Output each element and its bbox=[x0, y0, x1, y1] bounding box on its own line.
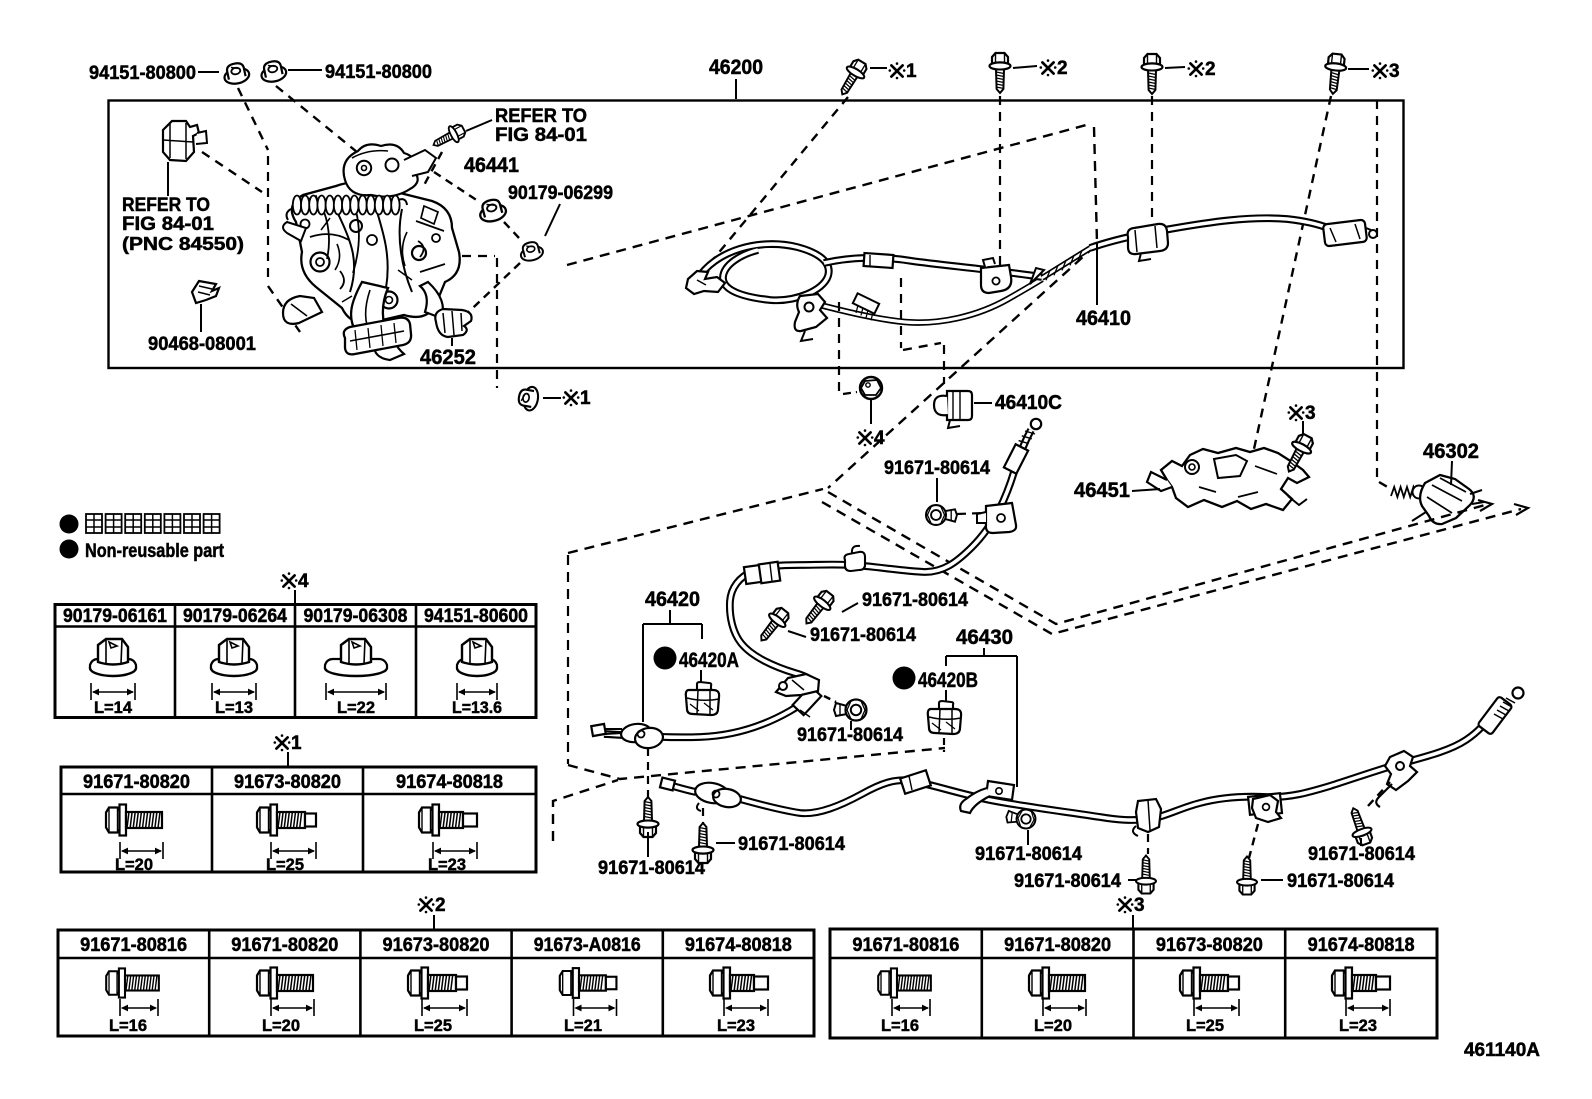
svg-text:90179-06161: 90179-06161 bbox=[63, 606, 167, 627]
svg-text:REFER TO: REFER TO bbox=[495, 106, 587, 127]
svg-text:1: 1 bbox=[906, 61, 917, 82]
svg-text:91671-80614: 91671-80614 bbox=[598, 858, 705, 879]
svg-text:94151-80800: 94151-80800 bbox=[325, 62, 432, 83]
svg-text:91673-80820: 91673-80820 bbox=[1156, 935, 1263, 956]
svg-text:1: 1 bbox=[291, 733, 302, 754]
svg-text:90179-06299: 90179-06299 bbox=[508, 183, 613, 204]
svg-text:2: 2 bbox=[1205, 59, 1216, 80]
svg-text:46200: 46200 bbox=[709, 56, 763, 79]
svg-text:46252: 46252 bbox=[420, 346, 476, 369]
svg-text:2: 2 bbox=[1057, 58, 1068, 79]
svg-text:2: 2 bbox=[435, 895, 446, 916]
svg-text:(PNC 84550): (PNC 84550) bbox=[122, 234, 244, 254]
svg-text:46420: 46420 bbox=[645, 588, 700, 611]
svg-text:91671-80614: 91671-80614 bbox=[1287, 871, 1394, 892]
svg-text:L=25: L=25 bbox=[1186, 1016, 1224, 1035]
svg-text:94151-80800: 94151-80800 bbox=[89, 63, 196, 84]
svg-text:FIG 84-01: FIG 84-01 bbox=[495, 125, 587, 146]
svg-text:1: 1 bbox=[580, 388, 591, 409]
svg-text:46451: 46451 bbox=[1074, 479, 1130, 502]
svg-text:L=20: L=20 bbox=[115, 855, 153, 874]
svg-text:91671-80614: 91671-80614 bbox=[810, 625, 916, 646]
svg-text:REFER TO: REFER TO bbox=[122, 195, 210, 216]
svg-text:91671-80816: 91671-80816 bbox=[80, 935, 187, 956]
svg-text:3: 3 bbox=[1305, 403, 1316, 424]
svg-text:94151-80600: 94151-80600 bbox=[424, 606, 528, 627]
svg-text:91671-80614: 91671-80614 bbox=[1308, 844, 1415, 865]
svg-text:L=20: L=20 bbox=[1034, 1016, 1072, 1035]
svg-text:91671-80614: 91671-80614 bbox=[1014, 871, 1121, 892]
svg-text:90468-08001: 90468-08001 bbox=[148, 334, 256, 355]
svg-text:91671-80614: 91671-80614 bbox=[738, 834, 845, 855]
svg-text:90179-06264: 90179-06264 bbox=[183, 606, 287, 627]
svg-text:L=25: L=25 bbox=[414, 1016, 452, 1035]
svg-text:90179-06308: 90179-06308 bbox=[304, 606, 408, 627]
svg-text:91673-A0816: 91673-A0816 bbox=[534, 935, 641, 956]
svg-text:4: 4 bbox=[298, 571, 309, 592]
svg-text:L=23: L=23 bbox=[717, 1016, 755, 1035]
svg-text:46420A: 46420A bbox=[679, 649, 739, 672]
svg-text:91674-80818: 91674-80818 bbox=[685, 935, 792, 956]
svg-text:91674-80818: 91674-80818 bbox=[396, 772, 503, 793]
svg-text:46420B: 46420B bbox=[918, 669, 978, 692]
svg-text:Non-reusable part: Non-reusable part bbox=[85, 541, 225, 562]
svg-text:FIG 84-01: FIG 84-01 bbox=[122, 214, 214, 235]
svg-text:3: 3 bbox=[1134, 895, 1145, 916]
svg-text:91671-80614: 91671-80614 bbox=[797, 725, 903, 746]
svg-text:L=23: L=23 bbox=[1339, 1016, 1377, 1035]
svg-text:91671-80614: 91671-80614 bbox=[884, 458, 990, 479]
svg-text:L=14: L=14 bbox=[94, 698, 133, 717]
svg-text:46410C: 46410C bbox=[995, 392, 1062, 414]
svg-text:L=16: L=16 bbox=[881, 1016, 919, 1035]
svg-text:91671-80820: 91671-80820 bbox=[83, 772, 190, 793]
svg-text:46410: 46410 bbox=[1076, 307, 1131, 330]
svg-text:91671-80614: 91671-80614 bbox=[975, 844, 1082, 865]
svg-text:91671-80820: 91671-80820 bbox=[1004, 935, 1111, 956]
svg-text:L=21: L=21 bbox=[564, 1016, 602, 1035]
svg-text:L=22: L=22 bbox=[337, 698, 375, 717]
svg-text:91673-80820: 91673-80820 bbox=[383, 935, 490, 956]
svg-text:L=16: L=16 bbox=[109, 1016, 147, 1035]
svg-text:L=25: L=25 bbox=[266, 855, 304, 874]
svg-text:46430: 46430 bbox=[956, 626, 1013, 649]
svg-text:91674-80818: 91674-80818 bbox=[1308, 935, 1415, 956]
svg-text:91673-80820: 91673-80820 bbox=[234, 772, 341, 793]
svg-text:L=13.6: L=13.6 bbox=[452, 698, 502, 717]
svg-text:L=13: L=13 bbox=[215, 698, 253, 717]
svg-text:91671-80614: 91671-80614 bbox=[862, 590, 968, 611]
svg-text:L=23: L=23 bbox=[428, 855, 466, 874]
svg-text:46302: 46302 bbox=[1423, 440, 1479, 463]
svg-text:4: 4 bbox=[874, 428, 885, 449]
svg-text:46441: 46441 bbox=[464, 154, 519, 177]
svg-text:3: 3 bbox=[1389, 61, 1400, 82]
svg-text:461140A: 461140A bbox=[1464, 1040, 1540, 1061]
svg-text:91671-80820: 91671-80820 bbox=[231, 935, 338, 956]
svg-text:91671-80816: 91671-80816 bbox=[852, 935, 959, 956]
svg-text:L=20: L=20 bbox=[262, 1016, 300, 1035]
